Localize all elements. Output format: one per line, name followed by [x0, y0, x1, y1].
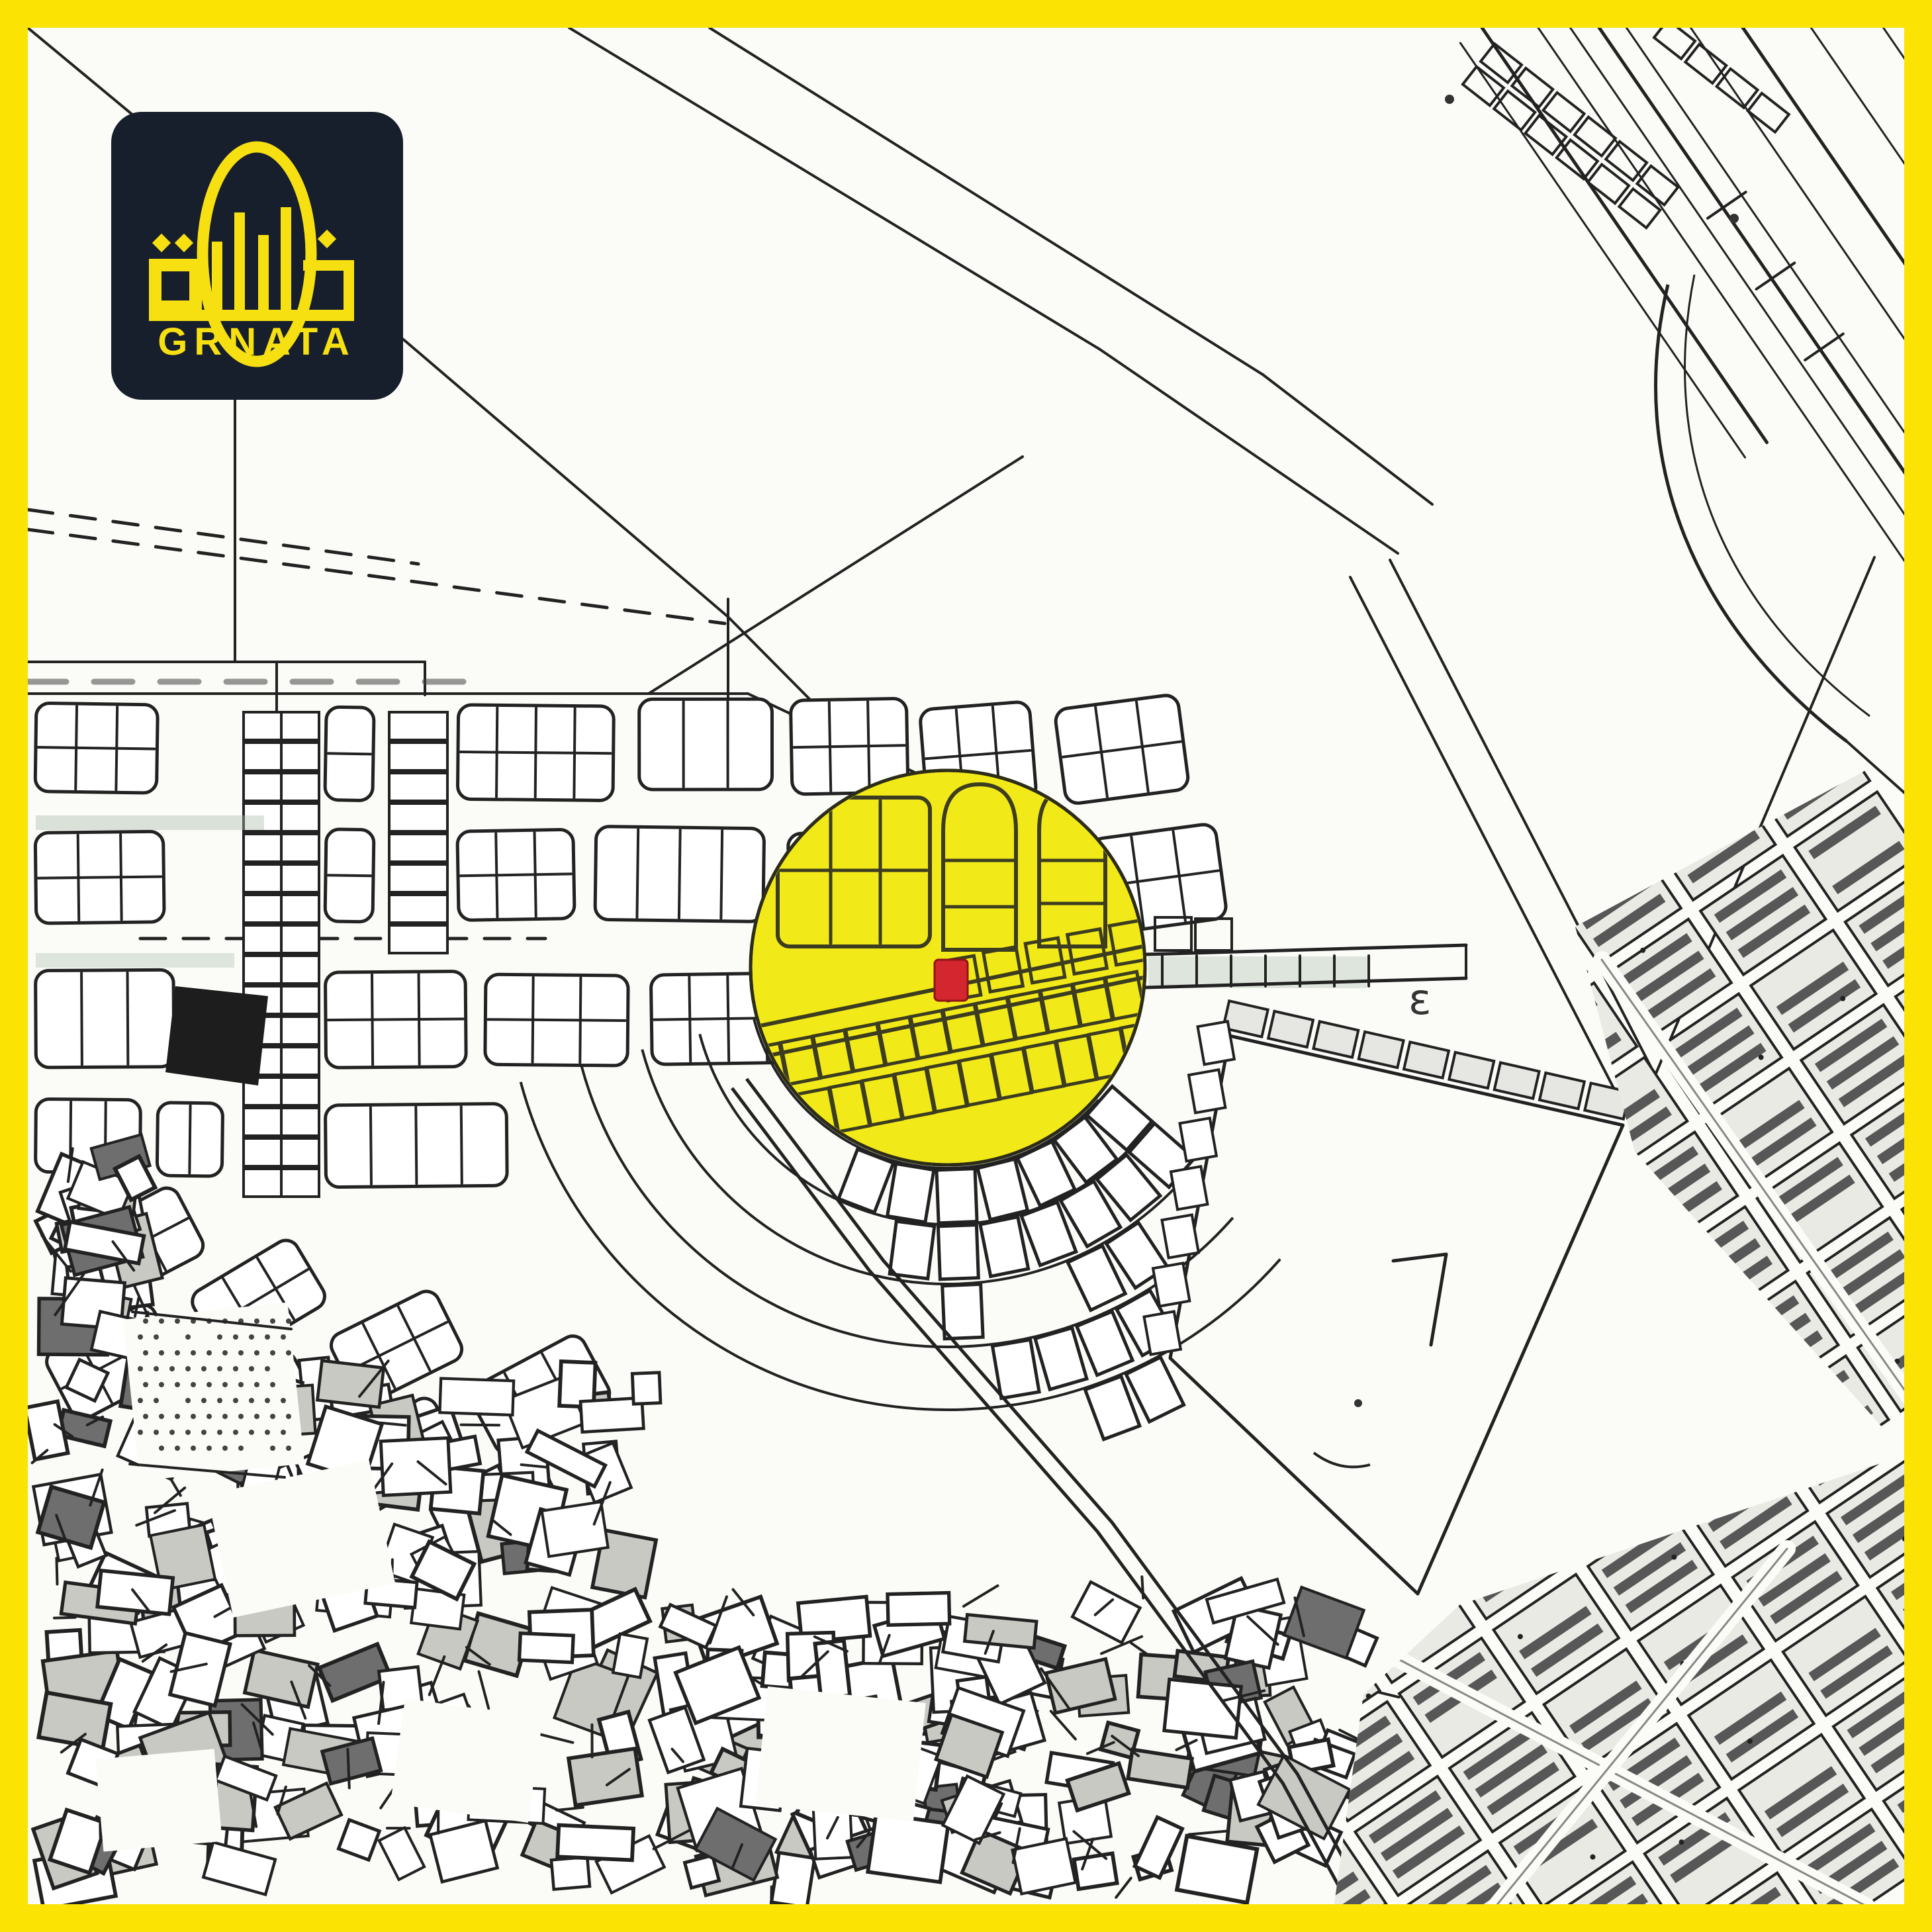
map-area: ε: [28, 28, 1904, 1904]
yellow-frame: ε: [0, 0, 1932, 1932]
highway: [1445, 28, 1904, 956]
epsilon-label: ε: [1408, 976, 1432, 1025]
arabic-wordmark: [149, 207, 354, 321]
brand-logo: GRNATA: [111, 112, 403, 400]
east-road: ε: [1145, 917, 1466, 1025]
grnata-wordmark: GRNATA: [158, 320, 355, 363]
location-marker: [935, 960, 968, 1001]
pentagon-area: [1144, 1001, 1630, 1594]
brand-badge: GRNATA: [111, 112, 403, 400]
